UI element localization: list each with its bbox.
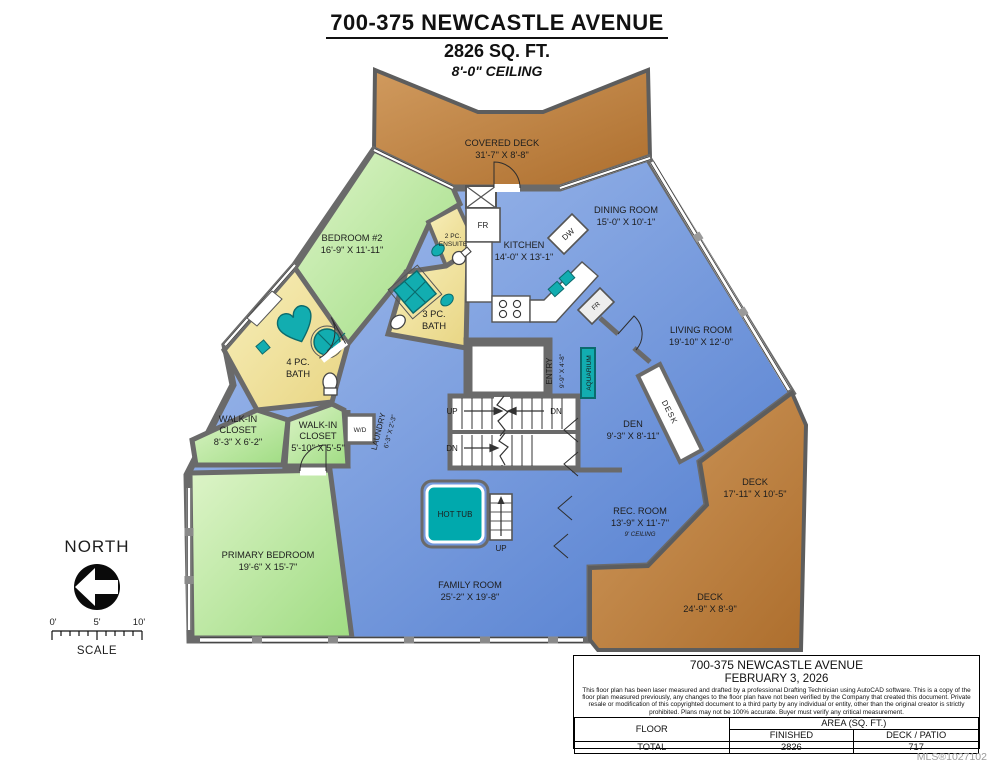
area-table: FLOOR AREA (SQ. FT.) FINISHED DECK / PAT… bbox=[574, 717, 979, 754]
rec-ceiling-note: 9' CEILING bbox=[624, 531, 655, 538]
aquarium-label: AQUARIUM bbox=[586, 355, 593, 391]
wic1-label-2: CLOSET bbox=[219, 425, 257, 435]
area-table-finished-header: FINISHED bbox=[729, 729, 854, 741]
hot-tub-up-label: UP bbox=[495, 544, 506, 553]
primary-label: PRIMARY BEDROOM bbox=[222, 550, 315, 560]
title-block-address: 700-375 NEWCASTLE AVENUE bbox=[574, 658, 979, 672]
primary-dims: 19'-6" X 15'-7" bbox=[239, 562, 298, 572]
stairs-up-label: UP bbox=[446, 407, 457, 416]
elevator-shaft bbox=[468, 342, 548, 396]
living-dims: 19'-10" X 12'-0" bbox=[669, 337, 733, 347]
area-table-floor-header: FLOOR bbox=[575, 717, 730, 741]
title-block: 700-375 NEWCASTLE AVENUE FEBRUARY 3, 202… bbox=[573, 655, 980, 749]
area-table-total-label: TOTAL bbox=[575, 741, 730, 753]
floor-plan-page: 700-375 NEWCASTLE AVENUE 2826 SQ. FT. 8'… bbox=[0, 0, 994, 768]
family-dims: 25'-2" X 19'-8" bbox=[441, 592, 500, 602]
wic1-dims: 8'-3" X 6'-2" bbox=[214, 437, 262, 447]
kitchen-dims: 14'-0" X 13'-1" bbox=[495, 252, 554, 262]
entry-label: ENTRY bbox=[545, 357, 554, 385]
title-block-disclaimer: This floor plan has been laser measured … bbox=[574, 685, 979, 717]
fridge-label: FR bbox=[478, 221, 489, 230]
area-table-area-header: AREA (SQ. FT.) bbox=[729, 717, 978, 729]
bath4-label-1: 4 PC. bbox=[286, 357, 309, 367]
scale-5-label: 5' bbox=[93, 617, 100, 628]
kitchen-label: KITCHEN bbox=[504, 240, 545, 250]
bath4-label-2: BATH bbox=[286, 369, 310, 379]
dining-label: DINING ROOM bbox=[594, 205, 658, 215]
scale-0-label: 0' bbox=[49, 617, 56, 628]
family-label: FAMILY ROOM bbox=[438, 580, 502, 590]
scale-bar bbox=[52, 631, 142, 640]
hot-tub-steps bbox=[490, 494, 512, 540]
scale-label: SCALE bbox=[77, 645, 117, 657]
wic1-label-1: WALK-IN bbox=[219, 414, 257, 424]
ensuite-label-2: ENSUITE bbox=[439, 241, 468, 248]
deck-right-dims: 17'-11" X 10'-5" bbox=[723, 489, 786, 499]
den-dims: 9'-3" X 8'-11" bbox=[607, 431, 660, 441]
mls-number: MLS®1027102 bbox=[917, 751, 987, 763]
wic2-label-1: WALK-IN bbox=[299, 420, 337, 430]
area-table-deck-header: DECK / PATIO bbox=[854, 729, 979, 741]
den-label: DEN bbox=[623, 419, 643, 429]
hot-tub-label: HOT TUB bbox=[438, 510, 473, 519]
washer-dryer-label: W/D bbox=[354, 427, 367, 434]
stairs-dn-label: DN bbox=[550, 407, 562, 416]
title-block-date: FEBRUARY 3, 2026 bbox=[574, 673, 979, 685]
deck-right-label: DECK bbox=[742, 477, 769, 487]
bath3-label-1: 3 PC. bbox=[422, 309, 445, 319]
entry-dims: 9'-9" X 4'-8" bbox=[559, 353, 566, 388]
stairs-dn2-label: DN bbox=[446, 444, 458, 453]
bedroom2-label: BEDROOM #2 bbox=[322, 233, 383, 243]
rec-dims: 13'-9" X 11'-7" bbox=[611, 518, 669, 528]
north-label: NORTH bbox=[64, 537, 129, 556]
stair-break-mask-lower bbox=[496, 434, 511, 465]
rec-label: REC. ROOM bbox=[613, 506, 667, 516]
covered-deck-dims: 31'-7" X 8'-8" bbox=[475, 150, 529, 160]
bedroom2-dims: 16'-9" X 11'-11" bbox=[321, 245, 384, 255]
deck-bottom-dims: 24'-9" X 8'-9" bbox=[683, 604, 737, 614]
area-table-finished-value: 2826 bbox=[729, 741, 854, 753]
wic2-dims: 5'-10" X 5'-5" bbox=[291, 443, 345, 453]
scale-10-label: 10' bbox=[133, 617, 146, 628]
covered-deck-label: COVERED DECK bbox=[465, 138, 540, 148]
floor-plan-drawing: UP DN DN ENTRY 9'-9" X 4'-8" AQUARIUM FR… bbox=[0, 0, 994, 768]
wic2-label-2: CLOSET bbox=[299, 431, 337, 441]
deck-bottom-label: DECK bbox=[697, 592, 724, 602]
dining-dims: 15'-0" X 10'-1" bbox=[597, 217, 656, 227]
ensuite-label-1: 2 PC. bbox=[445, 233, 462, 240]
bath3-label-2: BATH bbox=[422, 321, 446, 331]
living-label: LIVING ROOM bbox=[670, 325, 732, 335]
north-compass: NORTH bbox=[64, 537, 129, 610]
